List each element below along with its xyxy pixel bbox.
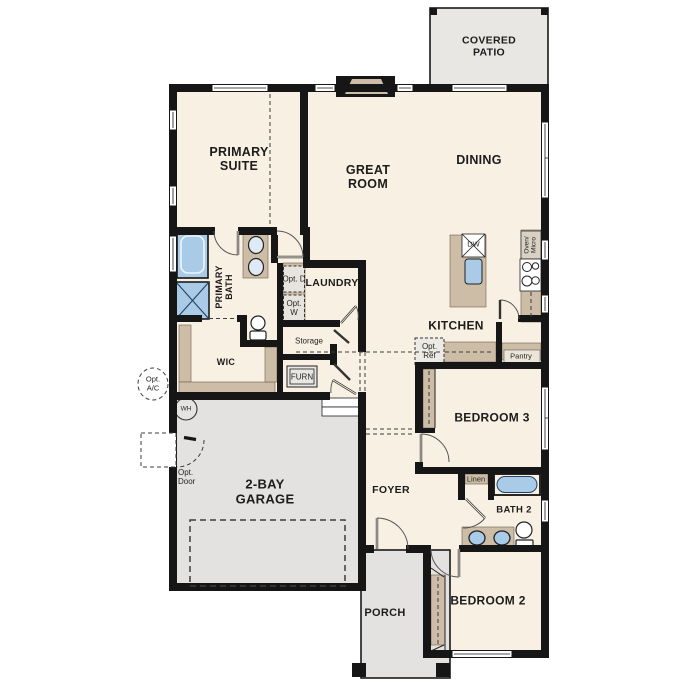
room-label-garage: 2-BAY GARAGE	[219, 477, 311, 506]
sink-icon	[469, 531, 485, 545]
feature-label-furn: FURN	[291, 372, 313, 381]
porch-post-right	[436, 663, 450, 677]
feature-label-opt-ref: Opt. Ref	[417, 342, 443, 360]
porch-post-left	[352, 663, 366, 677]
feature-label-storage: Storage	[295, 336, 323, 345]
floor-plan: COVERED PATIO PRIMARY SUITE GREAT ROOM D…	[0, 0, 687, 687]
feature-label-pantry: Pantry	[510, 352, 532, 361]
feature-label-linen: Linen	[467, 475, 485, 484]
stair-step	[322, 407, 360, 416]
room-label-covered-patio: COVERED PATIO	[451, 35, 527, 59]
kitchen-sink-icon	[465, 259, 482, 284]
feature-label-wh: WH	[181, 405, 192, 412]
feature-label-oven-micro: Oven/ Micro	[524, 230, 539, 260]
opt-door-dashed-box	[141, 433, 176, 467]
room-label-kitchen: KITCHEN	[428, 319, 483, 332]
sink-icon	[249, 237, 264, 254]
room-label-dining: DINING	[456, 153, 502, 167]
patio-post-left	[430, 8, 437, 15]
room-label-primary-suite: PRIMARY SUITE	[192, 145, 286, 173]
room-label-foyer: FOYER	[372, 485, 410, 497]
patio-post-right	[541, 8, 548, 15]
room-label-laundry: LAUNDRY	[305, 278, 358, 290]
toilet-icon	[251, 316, 265, 330]
room-label-primary-bath: PRIMARY BATH	[214, 260, 234, 314]
room-label-bath2: BATH 2	[492, 506, 536, 517]
toilet-icon	[516, 522, 532, 538]
opt-door-hinge-tick	[184, 438, 196, 440]
sink-icon	[494, 531, 510, 545]
wic-shelf-left	[179, 325, 191, 382]
floor-plan-drawing	[0, 0, 687, 687]
bedroom3-closet	[423, 369, 435, 428]
feature-label-opt-w: Opt. W	[282, 299, 306, 317]
feature-label-dw: DW	[467, 241, 480, 250]
feature-label-opt-ac: Opt. A/C	[141, 375, 165, 392]
feature-label-opt-door: Opt. Door	[178, 468, 208, 486]
sink-icon	[249, 259, 264, 276]
room-label-porch: PORCH	[364, 607, 405, 619]
room-label-great-room: GREAT ROOM	[332, 163, 404, 191]
wic-shelf-right	[265, 347, 277, 382]
feature-label-opt-d: Opt. D	[282, 274, 306, 283]
room-label-wic: WIC	[217, 357, 235, 367]
room-label-bedroom3: BEDROOM 3	[454, 411, 529, 424]
room-label-bedroom2: BEDROOM 2	[450, 594, 525, 607]
